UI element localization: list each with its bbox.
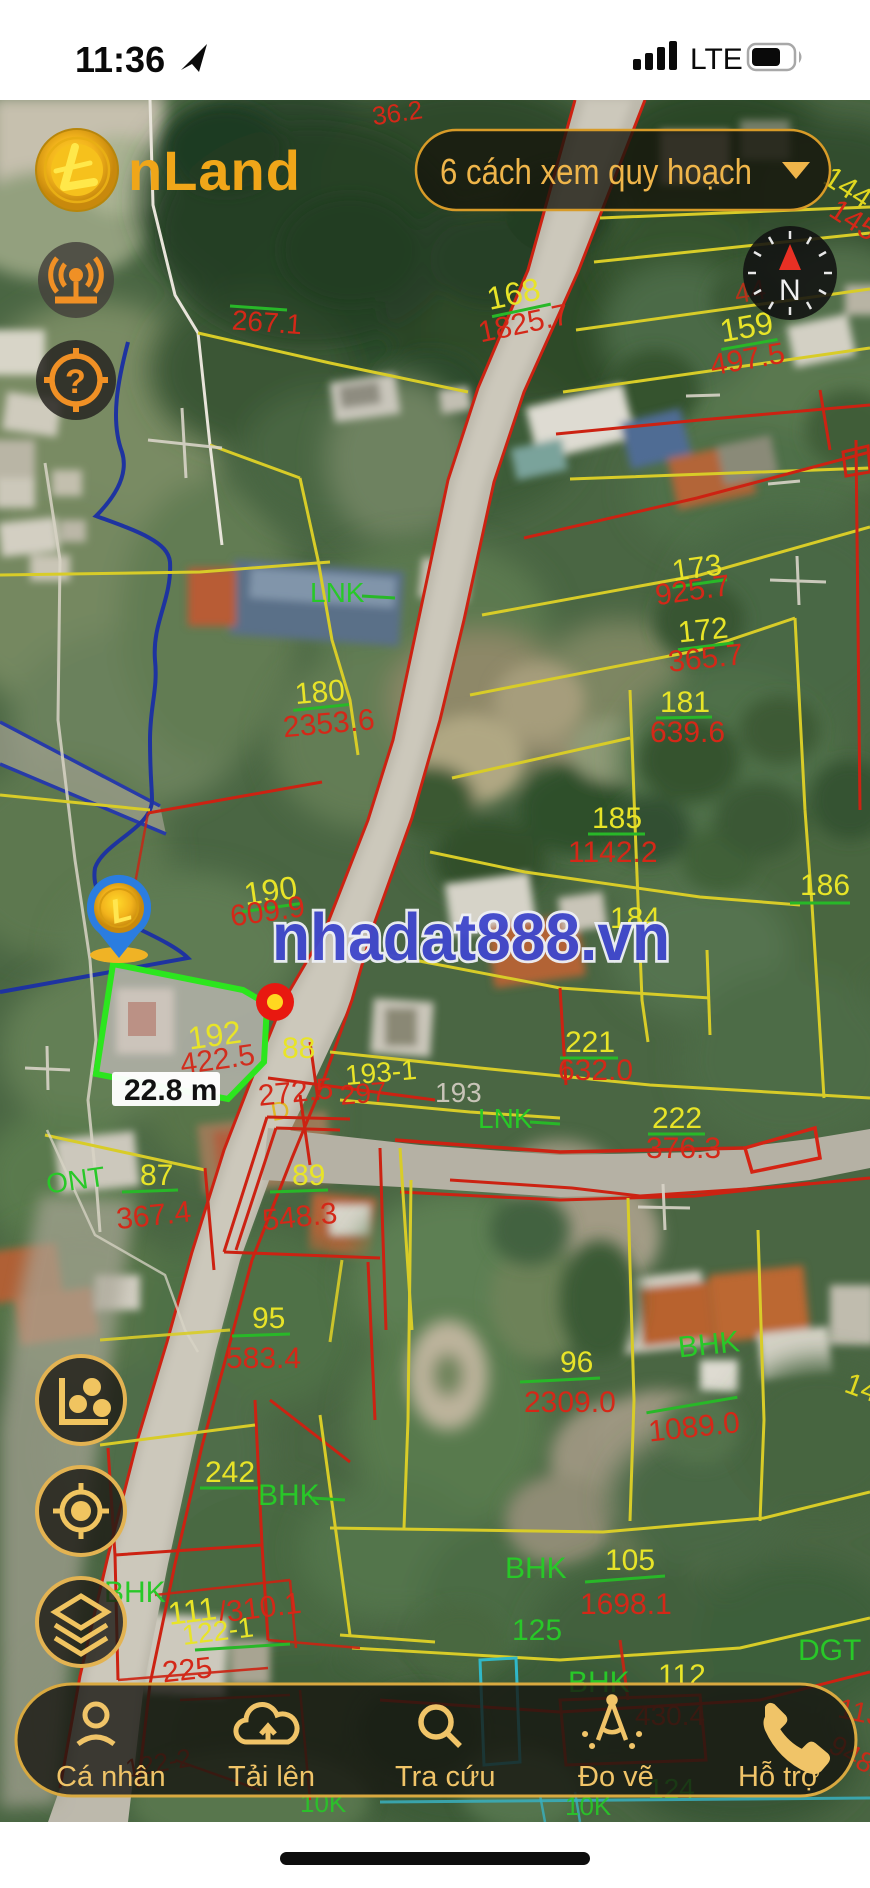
- svg-text:267.1: 267.1: [231, 304, 303, 340]
- svg-text:Đo vẽ: Đo vẽ: [578, 1761, 654, 1793]
- svg-text:LNK: LNK: [310, 577, 365, 608]
- svg-text:632.0: 632.0: [558, 1054, 633, 1087]
- svg-text:1698.1: 1698.1: [580, 1588, 672, 1621]
- svg-text:LTE: LTE: [690, 43, 743, 76]
- svg-text:583.4: 583.4: [226, 1342, 301, 1375]
- svg-text:96: 96: [560, 1346, 593, 1379]
- svg-text:95: 95: [252, 1302, 285, 1335]
- svg-text:89: 89: [292, 1159, 325, 1192]
- svg-text:6 cách xem quy hoạch: 6 cách xem quy hoạch: [440, 151, 752, 192]
- svg-text:1142.2: 1142.2: [568, 836, 658, 869]
- svg-text:BHK: BHK: [258, 1479, 320, 1512]
- svg-text:125: 125: [512, 1614, 562, 1647]
- svg-text:Cá nhân: Cá nhân: [56, 1761, 166, 1793]
- svg-text:639.6: 639.6: [650, 716, 725, 749]
- svg-text:242: 242: [205, 1456, 255, 1489]
- svg-text:11:36: 11:36: [75, 39, 165, 80]
- svg-text:nhadat888.vn: nhadat888.vn: [272, 900, 670, 975]
- svg-text:297: 297: [339, 1076, 388, 1111]
- svg-text:105: 105: [605, 1544, 655, 1577]
- svg-text:87: 87: [140, 1159, 173, 1192]
- svg-text:BHK: BHK: [505, 1552, 567, 1585]
- svg-text:186: 186: [800, 869, 850, 902]
- svg-text:22.8 m: 22.8 m: [124, 1074, 217, 1107]
- svg-text:222: 222: [652, 1102, 702, 1135]
- svg-text:N: N: [779, 274, 801, 307]
- svg-text:88: 88: [282, 1032, 315, 1065]
- svg-text:185: 185: [592, 802, 642, 835]
- svg-text:BHK: BHK: [676, 1325, 741, 1364]
- svg-text:LNK: LNK: [478, 1103, 533, 1134]
- svg-text:nLand: nLand: [128, 139, 301, 202]
- svg-text:Hỗ trợ: Hỗ trợ: [738, 1760, 820, 1793]
- svg-text:193: 193: [435, 1077, 482, 1108]
- svg-text:?: ?: [65, 363, 86, 401]
- svg-text:376.3: 376.3: [646, 1132, 721, 1165]
- svg-text:Tra cứu: Tra cứu: [395, 1761, 496, 1793]
- svg-text:181: 181: [660, 686, 710, 719]
- svg-text:DGT: DGT: [798, 1634, 861, 1667]
- svg-text:Tải lên: Tải lên: [228, 1761, 315, 1793]
- svg-text:2309.0: 2309.0: [524, 1386, 616, 1419]
